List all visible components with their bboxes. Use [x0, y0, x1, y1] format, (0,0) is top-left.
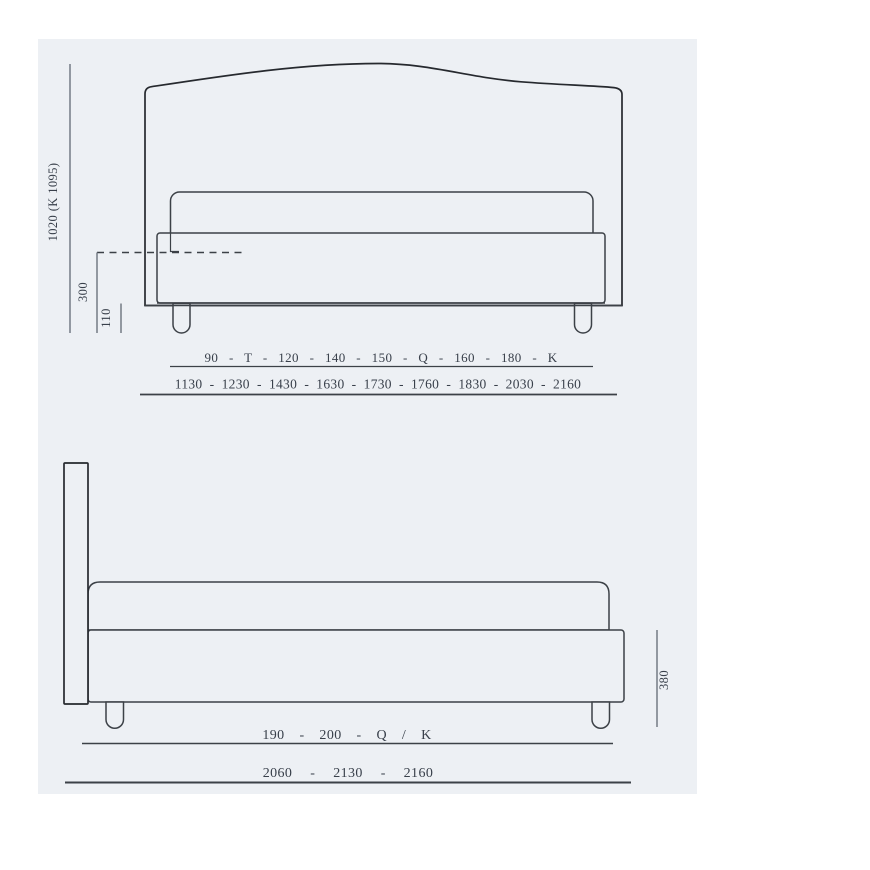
dim-label-total-height: 1020 (K 1095) — [46, 163, 60, 242]
dim-label-leg-height: 110 — [99, 308, 113, 328]
mattress-outline-side — [88, 582, 609, 630]
bed-leg-side-right — [592, 702, 610, 728]
side-size-lengths-row: 2060 - 2130 - 2160 — [263, 766, 434, 781]
side-size-names-row: 190 - 200 - Q / K — [262, 728, 431, 743]
bed-leg-side-left — [106, 702, 124, 728]
headboard-side-panel — [64, 463, 88, 704]
dim-label-base-height: 380 — [657, 670, 671, 690]
front-size-names-row: 90 - T - 120 - 140 - 150 - Q - 160 - 180… — [205, 350, 558, 365]
bed-leg-front-left — [173, 304, 190, 334]
bed-base-outline-front — [157, 233, 605, 303]
dim-label-platform-height: 300 — [76, 282, 90, 302]
bed-leg-front-right — [575, 304, 592, 334]
bed-dimension-diagram: 1020 (K 1095) 300 110 90 - T - 120 - 140… — [0, 0, 870, 870]
front-size-widths-row: 1130 - 1230 - 1430 - 1630 - 1730 - 1760 … — [175, 377, 581, 392]
diagram-canvas: 1020 (K 1095) 300 110 90 - T - 120 - 140… — [0, 0, 870, 870]
bed-base-outline-side — [88, 630, 624, 702]
